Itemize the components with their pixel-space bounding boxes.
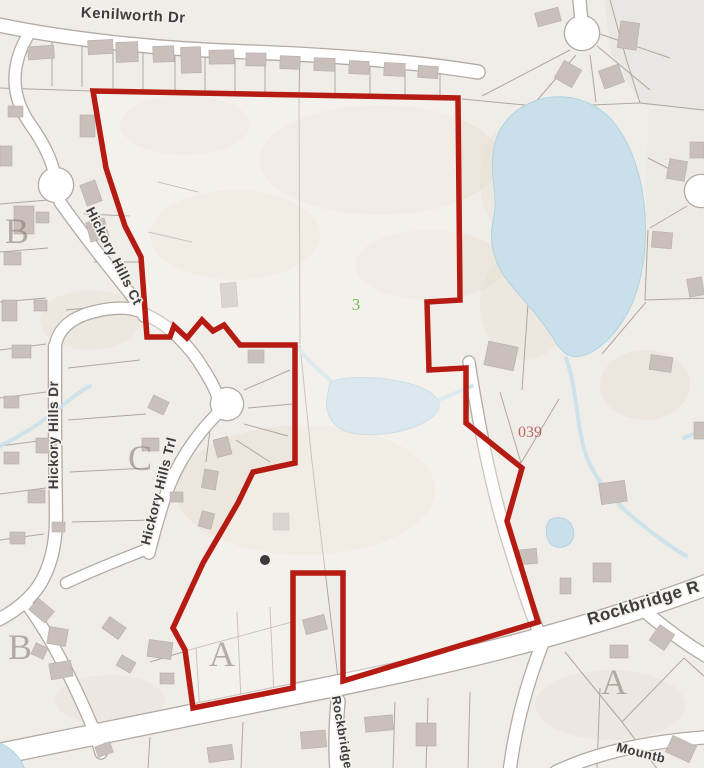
building-footprint: [181, 47, 202, 74]
building-footprint: [694, 422, 704, 439]
building-footprint: [560, 578, 571, 594]
building-footprint: [160, 673, 174, 684]
building-footprint: [687, 277, 704, 297]
parcel-number-label: 3: [352, 295, 361, 314]
building-footprint: [2, 300, 17, 321]
section-letter: B: [8, 627, 32, 667]
building-footprint: [28, 490, 45, 503]
building-footprint: [8, 106, 23, 117]
terrain-patch: [600, 350, 690, 420]
building-footprint: [349, 60, 370, 74]
building-footprint: [88, 39, 114, 54]
culdesac-stem: [579, 0, 581, 16]
building-footprint: [280, 56, 300, 70]
building-footprint: [248, 350, 264, 363]
building-footprint: [52, 522, 65, 532]
building-footprint: [364, 715, 393, 732]
building-footprint: [246, 53, 266, 66]
building-footprint: [416, 723, 436, 746]
building-footprint: [4, 396, 19, 408]
building-footprint: [147, 639, 173, 659]
building-footprint: [153, 46, 175, 63]
parcel-number-label: 039: [518, 424, 542, 441]
parcel-map-svg: BCBAA3039Kenilworth DrHickory Hills CtHi…: [0, 0, 704, 768]
site-dot[interactable]: [260, 555, 270, 565]
building-footprint: [170, 492, 183, 502]
building-footprint: [12, 345, 31, 358]
culdesac-bulb: [39, 168, 73, 202]
section-letter: A: [601, 662, 627, 702]
building-footprint: [599, 480, 628, 504]
building-footprint: [418, 65, 439, 78]
building-footprint: [0, 146, 12, 166]
building-footprint: [384, 62, 406, 76]
building-footprint: [593, 563, 611, 582]
small-pond: [546, 518, 573, 548]
building-footprint: [4, 452, 19, 464]
building-footprint: [207, 744, 234, 762]
building-footprint: [314, 58, 335, 72]
section-letter: C: [128, 438, 152, 478]
building-footprint: [690, 142, 704, 158]
building-footprint: [300, 730, 326, 749]
building-footprint: [4, 252, 21, 265]
building-footprint: [28, 45, 55, 60]
building-footprint: [610, 645, 628, 658]
section-letter: B: [5, 211, 29, 251]
building-footprint: [49, 660, 73, 680]
building-footprint: [36, 212, 49, 223]
culdesac-bulb: [211, 388, 243, 420]
building-footprint: [80, 115, 95, 137]
map-canvas[interactable]: BCBAA3039Kenilworth DrHickory Hills CtHi…: [0, 0, 704, 768]
building-footprint: [666, 159, 687, 182]
building-footprint: [34, 300, 47, 311]
building-footprint: [47, 626, 69, 646]
building-footprint: [10, 532, 25, 544]
street-label: Hickory Hills Dr: [46, 380, 61, 489]
section-letter: A: [209, 634, 235, 674]
building-footprint: [116, 42, 139, 63]
building-footprint: [201, 469, 218, 490]
building-footprint: [617, 21, 640, 50]
building-footprint: [651, 231, 672, 249]
building-footprint: [209, 50, 234, 64]
markers-layer: [260, 555, 270, 565]
culdesac-bulb: [565, 16, 599, 50]
building-footprint: [649, 355, 673, 373]
